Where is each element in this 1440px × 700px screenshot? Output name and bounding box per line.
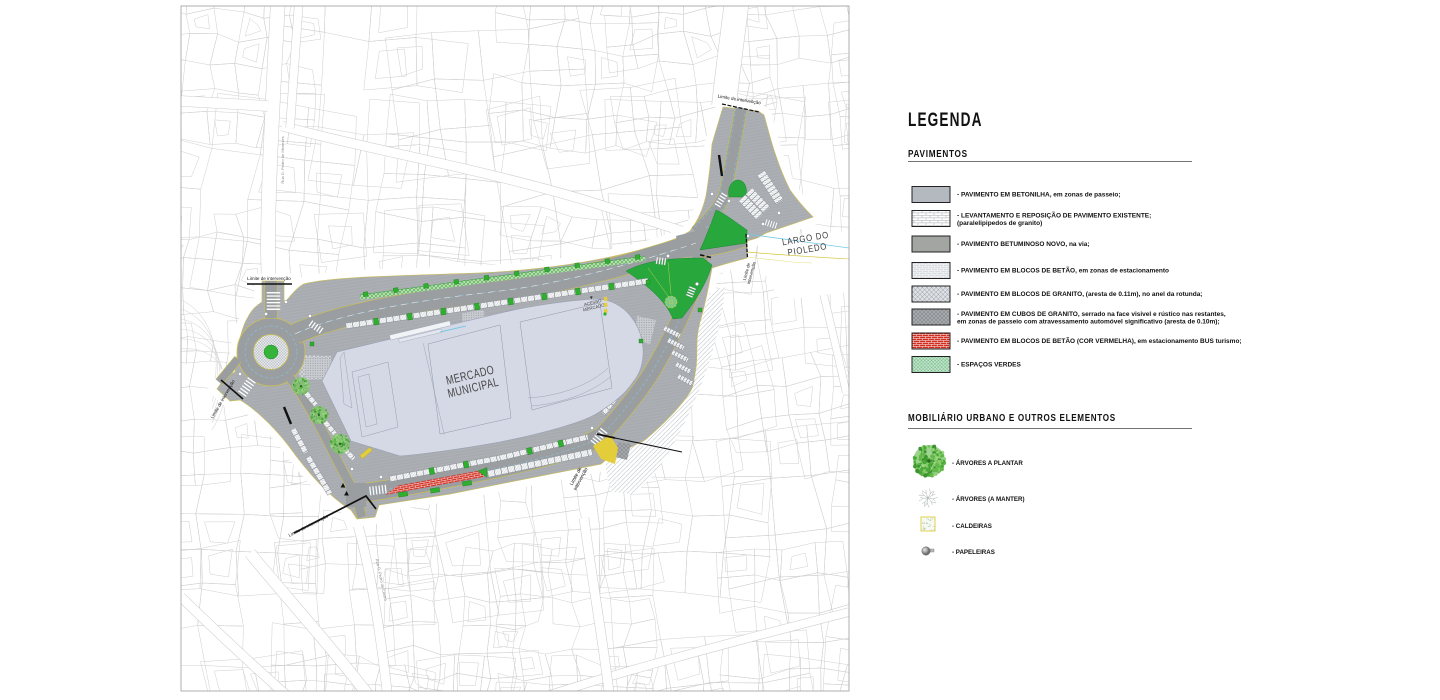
svg-text:(paralelipipedos de granito): (paralelipipedos de granito) (957, 220, 1042, 227)
svg-text:Limite de intervenção: Limite de intervenção (247, 276, 291, 281)
svg-text:PAVIMENTOS: PAVIMENTOS (908, 147, 968, 159)
svg-text:Rua D. Pedro de Menezes: Rua D. Pedro de Menezes (280, 136, 285, 183)
svg-text:- PAVIMENTO EM BETONILHA, em z: - PAVIMENTO EM BETONILHA, em zonas de pa… (957, 192, 1121, 199)
svg-text:- PAPELEIRAS: - PAPELEIRAS (952, 549, 995, 556)
svg-text:- ESPAÇOS VERDES: - ESPAÇOS VERDES (957, 362, 1021, 369)
svg-text:em zonas de passeio com atrave: em zonas de passeio com atravessamento a… (957, 318, 1220, 325)
svg-text:- ÁRVORES A PLANTAR: - ÁRVORES A PLANTAR (952, 460, 1023, 467)
svg-text:- LEVANTAMENTO E REPOSIÇÃO DE: - LEVANTAMENTO E REPOSIÇÃO DE PAVIMENTO … (957, 211, 1151, 220)
svg-text:MOBILIÁRIO URBANO E OUTROS ELE: MOBILIÁRIO URBANO E OUTROS ELEMENTOS (908, 411, 1116, 423)
svg-text:- PAVIMENTO EM BLOCOS DE BETÃO: - PAVIMENTO EM BLOCOS DE BETÃO, em zonas… (957, 266, 1169, 275)
svg-text:- PAVIMENTO EM CUBOS DE GRANIT: - PAVIMENTO EM CUBOS DE GRANITO, serrado… (957, 311, 1226, 318)
svg-text:- ÁRVORES (A MANTER): - ÁRVORES (A MANTER) (952, 496, 1025, 503)
svg-text:- PAVIMENTO EM BLOCOS DE GRANI: - PAVIMENTO EM BLOCOS DE GRANITO, (arest… (957, 291, 1202, 298)
svg-text:- CALDEIRAS: - CALDEIRAS (952, 523, 992, 530)
svg-text:LEGENDA: LEGENDA (908, 109, 983, 131)
svg-text:- PAVIMENTO EM BLOCOS DE BETÃO: - PAVIMENTO EM BLOCOS DE BETÃO (COR VERM… (957, 336, 1242, 345)
svg-text:- PAVIMENTO BETUMINOSO NOVO, n: - PAVIMENTO BETUMINOSO NOVO, na via; (957, 241, 1090, 248)
